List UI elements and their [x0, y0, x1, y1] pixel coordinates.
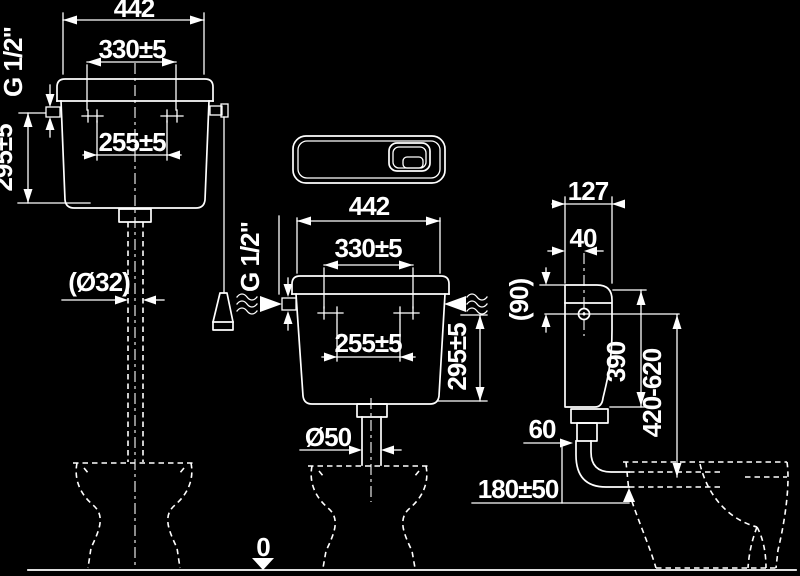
- water-inlet-right: [444, 294, 487, 314]
- cistern-top-view: [293, 136, 445, 183]
- dim-lid-to-inlet: (90): [504, 268, 564, 332]
- dim-pipe-length: 180±50: [472, 445, 635, 504]
- flush-button: [389, 143, 430, 171]
- datum-triangle-icon: [252, 558, 274, 570]
- svg-text:442: 442: [114, 0, 155, 23]
- pull-handle: [213, 293, 233, 330]
- outlet-fitting: [357, 404, 387, 417]
- flow-arrow-icon: [260, 296, 282, 312]
- water-waves-icon: [467, 294, 487, 314]
- dim-mount-outer: 330±5: [87, 34, 176, 110]
- svg-text:330±5: 330±5: [98, 34, 166, 64]
- svg-text:442: 442: [349, 191, 390, 221]
- high-cistern-front-view: 442 330±5 255±5 G 1/2": [0, 0, 233, 568]
- svg-text:(90): (90): [504, 279, 534, 322]
- flush-lever: [210, 106, 222, 115]
- svg-text:G 1/2": G 1/2": [0, 27, 28, 97]
- svg-text:255±5: 255±5: [98, 127, 166, 157]
- svg-text:330±5: 330±5: [334, 233, 402, 263]
- toilet-front-view-left: [73, 463, 195, 568]
- toilet-side-view: [623, 462, 788, 568]
- mounting-holes: [82, 110, 183, 122]
- pull-chain: [210, 104, 233, 330]
- svg-text:390: 390: [601, 341, 631, 382]
- svg-text:60: 60: [529, 414, 556, 444]
- inlet-fitting: [46, 107, 60, 117]
- water-waves-icon: [237, 294, 257, 314]
- water-inlet-left: G 1/2": [235, 216, 296, 330]
- svg-text:127: 127: [568, 176, 609, 206]
- svg-text:G 1/2": G 1/2": [235, 222, 265, 292]
- dim-pipe-dia: (Ø32): [62, 267, 164, 305]
- svg-text:180±50: 180±50: [478, 474, 559, 504]
- dim-inlet-height: 295±5: [437, 315, 487, 401]
- toilet-front-view-middle: [308, 466, 430, 568]
- small-flush-segment: [403, 157, 423, 168]
- dim-inlet-height: 295±5: [0, 113, 90, 203]
- inlet-fitting: [282, 298, 296, 310]
- cistern-side-view: 127 40 (90) 390: [504, 176, 788, 568]
- dim-mount-outer: 330±5: [324, 233, 413, 308]
- svg-text:295±5: 295±5: [0, 124, 18, 192]
- technical-drawing: 0 442 330±5: [0, 0, 800, 576]
- svg-text:295±5: 295±5: [442, 323, 472, 391]
- svg-text:420-620: 420-620: [637, 348, 667, 437]
- svg-text:40: 40: [570, 223, 597, 253]
- datum-marker: 0: [252, 532, 274, 570]
- svg-text:255±5: 255±5: [334, 328, 402, 358]
- datum-label: 0: [256, 532, 270, 562]
- svg-text:Ø50: Ø50: [305, 422, 352, 452]
- svg-text:(Ø32): (Ø32): [68, 267, 130, 297]
- dim-install-height: 420-620: [637, 315, 682, 477]
- cistern-lid: [292, 276, 449, 294]
- mounting-holes: [318, 307, 419, 319]
- dim-mount-inner: 255±5: [322, 320, 415, 362]
- dim-inlet-offset: 40: [548, 223, 603, 256]
- dim-outlet-dia: Ø50: [300, 422, 401, 455]
- cistern-drawing-svg: 0 442 330±5: [0, 0, 800, 576]
- dim-outlet-offset: 60: [524, 414, 573, 448]
- flow-arrow-icon: [444, 296, 466, 312]
- dim-mount-inner: 255±5: [83, 121, 181, 160]
